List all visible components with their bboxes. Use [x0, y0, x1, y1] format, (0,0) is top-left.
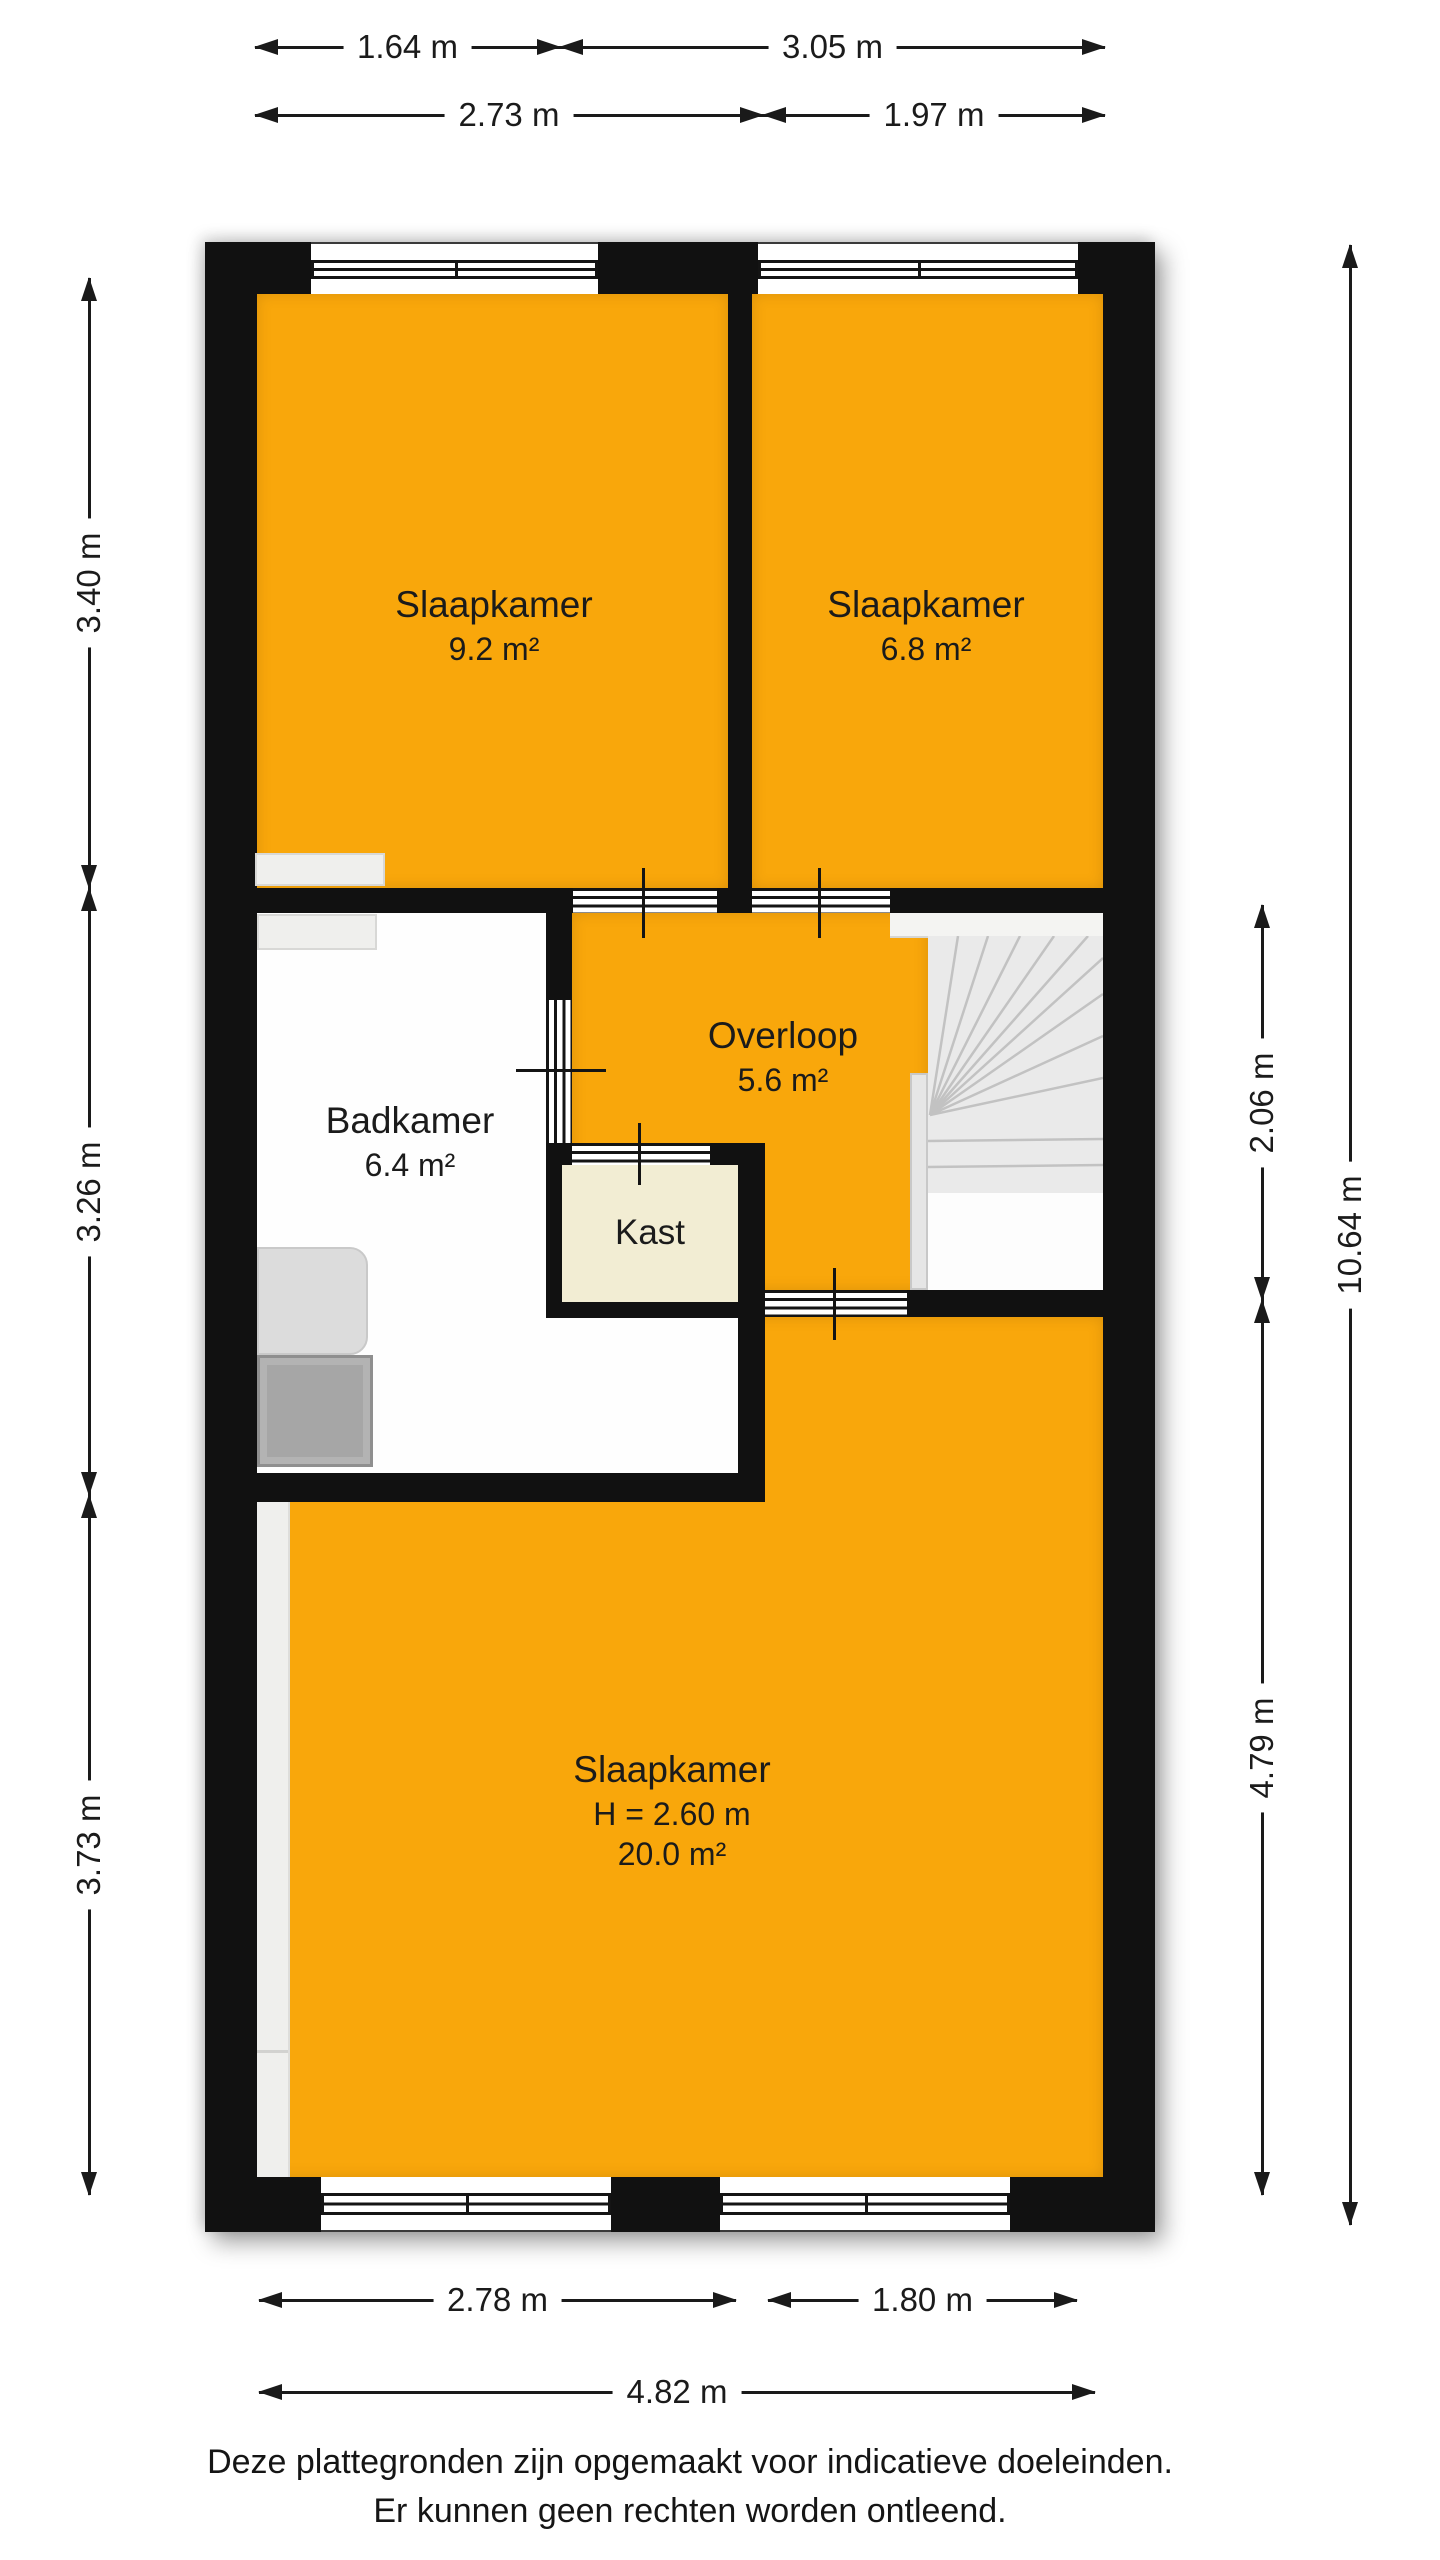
- dimension-1-97: 1.97 m: [763, 95, 1105, 135]
- dimension-label: 2.78 m: [433, 2281, 562, 2319]
- dimension-1-80: 1.80 m: [768, 2280, 1077, 2320]
- dimension-2-78: 2.78 m: [259, 2280, 736, 2320]
- floor-plan: Slaapkamer 9.2 m² Slaapkamer 6.8 m² Badk…: [205, 242, 1155, 2232]
- window-glass: [321, 2193, 611, 2215]
- kast-right-wall: [738, 1143, 765, 1502]
- dimension-10-64: 10.64 m: [1330, 245, 1370, 2225]
- door-badkamer-tick: [516, 1069, 606, 1072]
- room-name: Kast: [615, 1210, 685, 1256]
- dimension-3-26: 3.26 m: [69, 888, 109, 1495]
- room-name: Badkamer: [326, 1098, 495, 1144]
- room-area: 6.8 m²: [827, 628, 1024, 670]
- wall-niche-strip: [257, 1502, 290, 2177]
- door-slaapkamer-tl-tick: [642, 868, 645, 938]
- niche-divider-line: [257, 2050, 288, 2053]
- window-glass: [720, 2193, 1010, 2215]
- dimension-label: 1.64 m: [343, 28, 472, 66]
- room-name: Overloop: [708, 1013, 858, 1059]
- dimension-label: 4.82 m: [613, 2373, 742, 2411]
- door-slaapkamer-bottom: [765, 1290, 907, 1317]
- dimension-label: 1.80 m: [858, 2281, 987, 2319]
- room-area: 5.6 m²: [708, 1059, 858, 1101]
- door-slaapkamer-tl: [573, 888, 717, 913]
- room-name: Slaapkamer: [573, 1747, 770, 1793]
- dimension-1-64: 1.64 m: [255, 27, 560, 67]
- window-top-right: [758, 242, 1078, 294]
- door-slaapkamer-tr-tick: [818, 868, 821, 938]
- dimension-label: 3.26 m: [70, 1127, 108, 1256]
- disclaimer-line-1: Deze plattegronden zijn opgemaakt voor i…: [0, 2438, 1380, 2487]
- room-name: Slaapkamer: [395, 582, 592, 628]
- bath-unit-light: [257, 1247, 368, 1355]
- stairs-lower-landing: [928, 1193, 1103, 1290]
- bath-unit-dark: [257, 1355, 373, 1467]
- window-glass: [758, 260, 1078, 279]
- window-bottom-left: [321, 2177, 611, 2232]
- door-kast-tick: [638, 1123, 641, 1185]
- dimension-label: 2.73 m: [445, 96, 574, 134]
- dimension-label: 10.64 m: [1331, 1161, 1369, 1308]
- window-top-left: [311, 242, 598, 294]
- room-area: 6.4 m²: [326, 1144, 495, 1186]
- room-area: 20.0 m²: [573, 1835, 770, 1873]
- dimension-4-79: 4.79 m: [1242, 1300, 1282, 2195]
- dimension-3-73: 3.73 m: [69, 1495, 109, 2195]
- room-name: Slaapkamer: [827, 582, 1024, 628]
- dresser: [255, 853, 385, 886]
- stair-landing-strip: [890, 913, 1103, 938]
- window-glass: [311, 260, 598, 279]
- room-area: 9.2 m²: [395, 628, 592, 670]
- badkamer-bottom-wall: [257, 1473, 765, 1502]
- dimension-label: 3.05 m: [768, 28, 897, 66]
- disclaimer-line-2: Er kunnen geen rechten worden ontleend.: [0, 2487, 1380, 2536]
- dimension-label: 3.40 m: [70, 519, 108, 648]
- dimension-2-06: 2.06 m: [1242, 905, 1282, 1300]
- label-kast: Kast: [615, 1210, 685, 1256]
- dimension-2-73: 2.73 m: [255, 95, 763, 135]
- dimension-label: 3.73 m: [70, 1781, 108, 1910]
- dimension-label: 4.79 m: [1243, 1683, 1281, 1812]
- window-bottom-right: [720, 2177, 1010, 2232]
- dimension-label: 1.97 m: [870, 96, 999, 134]
- disclaimer: Deze plattegronden zijn opgemaakt voor i…: [0, 2438, 1380, 2536]
- label-slaapkamer-tr: Slaapkamer 6.8 m²: [827, 582, 1024, 670]
- door-slaapkamer-tr: [752, 888, 890, 913]
- label-overloop: Overloop 5.6 m²: [708, 1013, 858, 1101]
- dimension-3-05: 3.05 m: [560, 27, 1105, 67]
- stairs-icon: [928, 936, 1103, 1193]
- door-slaapkamer-bottom-tick: [833, 1268, 836, 1340]
- room-height: H = 2.60 m: [573, 1793, 770, 1835]
- label-badkamer: Badkamer 6.4 m²: [326, 1098, 495, 1186]
- label-slaapkamer-b: Slaapkamer H = 2.60 m 20.0 m²: [573, 1747, 770, 1873]
- dimension-label: 2.06 m: [1243, 1038, 1281, 1167]
- dimension-4-82: 4.82 m: [259, 2372, 1095, 2412]
- label-slaapkamer-tl: Slaapkamer 9.2 m²: [395, 582, 592, 670]
- bath-counter: [257, 914, 377, 950]
- overloop-left-wall: [546, 888, 572, 1000]
- stair-balustrade: [910, 1073, 928, 1290]
- door-kast: [572, 1143, 710, 1165]
- overloop-bottom-wall: [907, 1290, 1103, 1317]
- dimension-3-40: 3.40 m: [69, 278, 109, 888]
